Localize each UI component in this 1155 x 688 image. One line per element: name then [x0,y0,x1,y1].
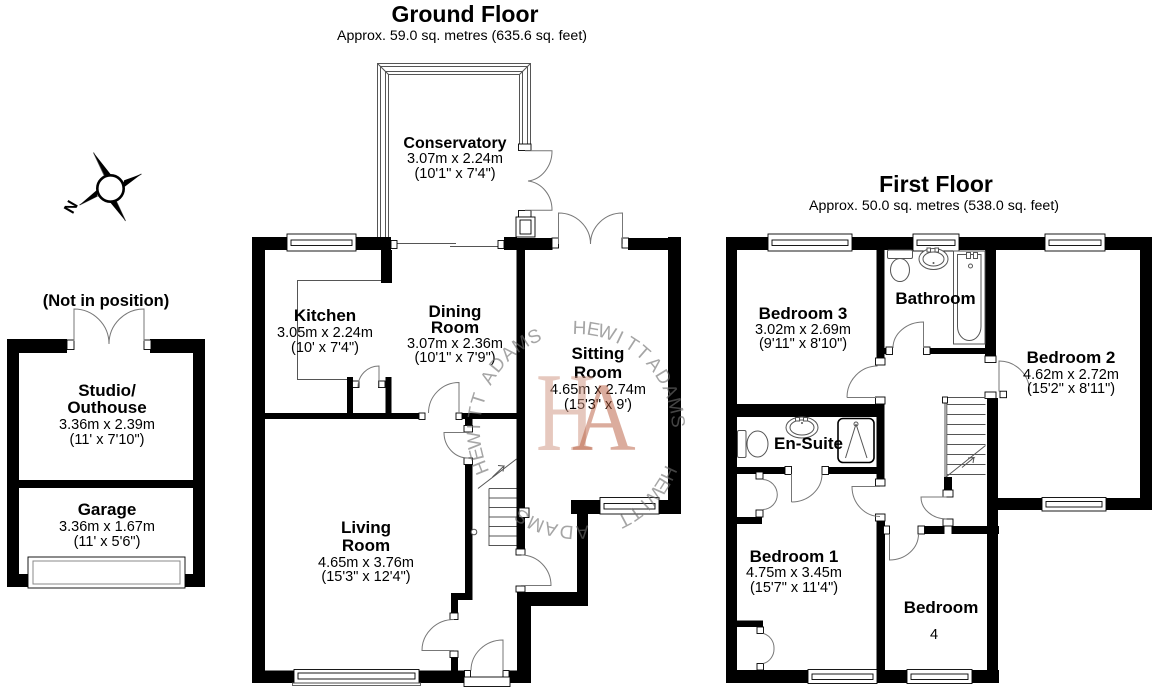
svg-text:(10'1" x 7'9"): (10'1" x 7'9") [414,350,495,366]
svg-text:Conservatory: Conservatory [403,135,506,152]
svg-text:(Not in position): (Not in position) [43,292,169,310]
svg-text:A: A [575,520,589,542]
svg-text:Approx. 59.0 sq. metres (635.6: Approx. 59.0 sq. metres (635.6 sq. feet) [337,28,587,44]
svg-text:(15'2" x 8'11"): (15'2" x 8'11") [1027,381,1115,397]
svg-text:Bedroom 2: Bedroom 2 [1027,348,1116,367]
svg-text:A: A [572,364,636,472]
svg-text:Kitchen: Kitchen [294,306,356,325]
svg-text:(15'7" x 11'4"): (15'7" x 11'4") [750,580,838,596]
svg-text:(11' x 7'10"): (11' x 7'10") [70,432,145,448]
svg-text:(11' x 5'6"): (11' x 5'6") [74,534,141,550]
svg-text:Outhouse: Outhouse [67,398,146,417]
svg-text:3.36m x 1.67m: 3.36m x 1.67m [59,519,155,535]
svg-text:D: D [559,520,575,542]
svg-text:W: W [464,430,487,450]
svg-text:Bathroom: Bathroom [895,289,975,308]
svg-text:En-Suite: En-Suite [774,434,843,453]
svg-text:Garage: Garage [78,500,137,519]
svg-text:4: 4 [930,627,938,643]
svg-text:Ground Floor: Ground Floor [392,1,539,27]
svg-text:First Floor: First Floor [879,171,993,197]
svg-text:(10'1" x 7'4"): (10'1" x 7'4") [414,166,495,182]
svg-text:3.05m x 2.24m: 3.05m x 2.24m [277,325,373,341]
svg-text:3.36m x 2.39m: 3.36m x 2.39m [59,417,155,433]
svg-text:(15'3" x 12'4"): (15'3" x 12'4") [321,569,410,585]
svg-text:I: I [464,424,485,430]
svg-text:Bedroom: Bedroom [904,598,979,617]
svg-text:Living: Living [341,518,391,537]
svg-text:(10' x 7'4"): (10' x 7'4") [291,340,359,356]
svg-text:(9'11" x 8'10"): (9'11" x 8'10") [759,336,847,352]
svg-text:H: H [572,318,586,339]
svg-text:Room: Room [342,536,390,555]
svg-text:Room: Room [431,318,479,337]
svg-text:Bedroom 3: Bedroom 3 [759,304,848,323]
svg-text:Approx. 50.0 sq. metres (538.0: Approx. 50.0 sq. metres (538.0 sq. feet) [809,198,1059,214]
svg-text:4.75m x 3.45m: 4.75m x 3.45m [746,565,842,581]
svg-text:3.07m x 2.24m: 3.07m x 2.24m [407,151,503,167]
svg-text:S: S [666,414,688,428]
svg-text:Bedroom 1: Bedroom 1 [750,547,839,566]
